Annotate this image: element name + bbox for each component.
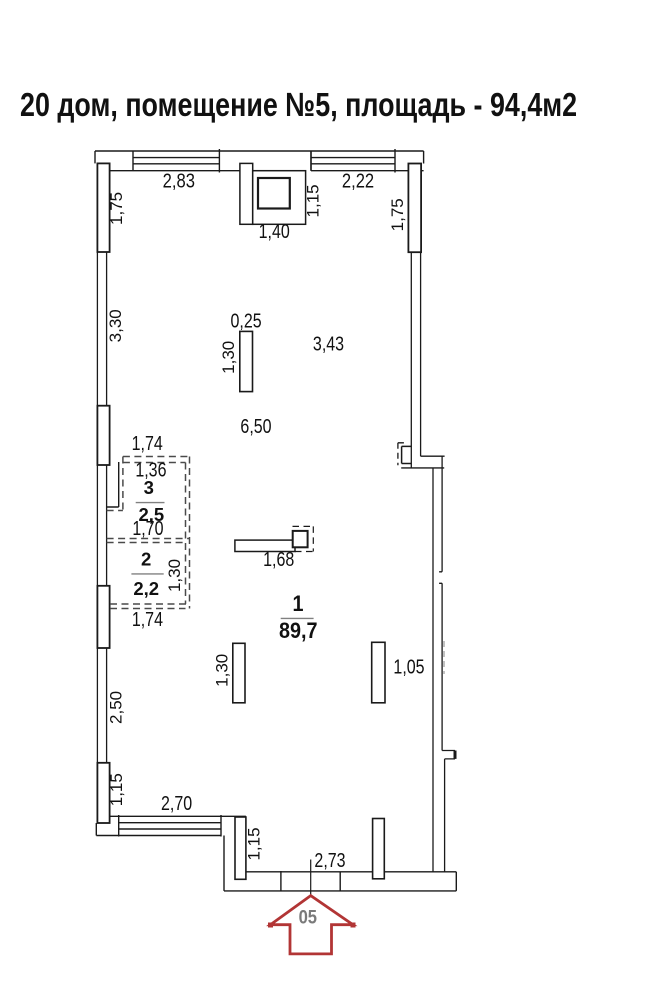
svg-text:2: 2 <box>141 548 151 569</box>
svg-text:3,30: 3,30 <box>106 309 125 342</box>
svg-text:1,40: 1,40 <box>259 220 290 242</box>
svg-text:1: 1 <box>292 592 303 616</box>
svg-text:1,15: 1,15 <box>107 773 126 806</box>
svg-text:6,50: 6,50 <box>240 415 271 437</box>
svg-text:89,7: 89,7 <box>279 619 318 643</box>
svg-text:2,22: 2,22 <box>342 169 374 192</box>
svg-text:1,15: 1,15 <box>245 827 264 860</box>
svg-text:0,25: 0,25 <box>231 310 262 332</box>
svg-text:1,05: 1,05 <box>393 656 424 678</box>
svg-text:1,74: 1,74 <box>132 432 163 454</box>
svg-text:2,83: 2,83 <box>163 169 195 192</box>
svg-text:2,2: 2,2 <box>133 578 159 599</box>
svg-text:2,70: 2,70 <box>161 792 192 814</box>
svg-text:05: 05 <box>299 906 317 928</box>
svg-text:1,75: 1,75 <box>107 192 126 225</box>
svg-text:3: 3 <box>144 477 154 498</box>
svg-text:2,5: 2,5 <box>138 504 164 525</box>
svg-text:3,43: 3,43 <box>313 333 344 355</box>
svg-text:20 дом, помещение №5, площадь: 20 дом, помещение №5, площадь - 94,4м2 <box>20 87 577 123</box>
svg-text:2,50: 2,50 <box>107 691 126 724</box>
svg-text:1,74: 1,74 <box>132 608 163 630</box>
svg-text:1,30: 1,30 <box>219 341 238 374</box>
svg-text:1,68: 1,68 <box>263 548 294 570</box>
svg-text:1,75: 1,75 <box>388 198 407 231</box>
svg-text:1,30: 1,30 <box>213 654 232 687</box>
svg-text:2,73: 2,73 <box>314 849 345 871</box>
svg-text:1,15: 1,15 <box>304 184 323 217</box>
svg-text:1,30: 1,30 <box>165 559 184 592</box>
